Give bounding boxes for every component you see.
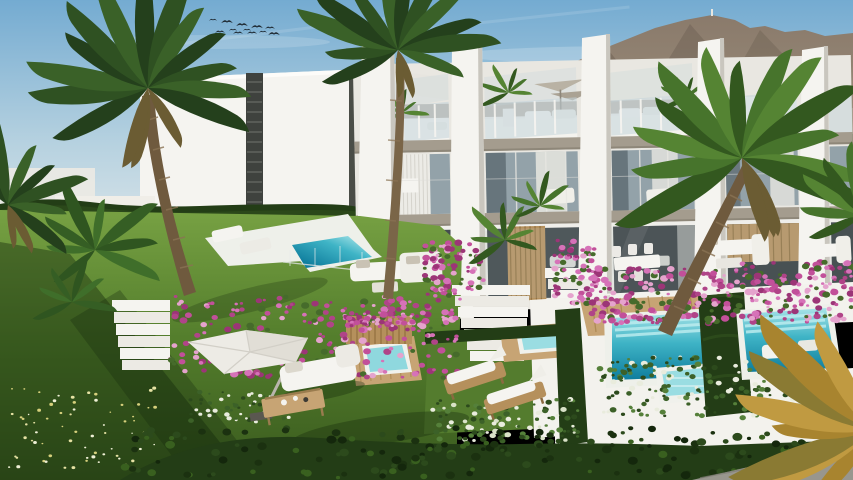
plant-dot	[91, 455, 95, 458]
plant-dot	[651, 321, 654, 324]
plant-dot	[522, 461, 531, 468]
plant-dot	[844, 260, 852, 266]
plant-dot	[617, 376, 623, 381]
plant-dot	[621, 431, 625, 434]
plant-dot	[740, 415, 746, 420]
plant-dot	[177, 302, 181, 306]
plant-dot	[102, 453, 105, 455]
plant-dot	[701, 366, 706, 370]
plant-dot	[660, 410, 666, 415]
plant-dot	[545, 424, 548, 427]
plant-dot	[349, 436, 356, 441]
plant-dot	[118, 458, 120, 460]
plant-dot	[640, 376, 645, 380]
plant-dot	[224, 412, 230, 416]
plant-dot	[235, 418, 238, 420]
plant-dot	[550, 416, 555, 420]
plant-dot	[379, 320, 385, 325]
plant-dot	[194, 333, 200, 338]
plant-dot	[690, 447, 700, 455]
plant-dot	[143, 431, 148, 435]
plant-dot	[8, 466, 10, 468]
plant-dot	[754, 388, 759, 392]
plant-dot	[621, 413, 625, 416]
plant-dot	[255, 372, 259, 376]
plant-dot	[586, 292, 592, 297]
plant-dot	[551, 266, 558, 272]
plant-dot	[747, 455, 751, 458]
plant-dot	[706, 390, 709, 393]
plant-dot	[677, 396, 681, 399]
plant-dot	[603, 296, 607, 299]
plant-dot	[677, 367, 683, 372]
plant-dot	[317, 316, 324, 321]
plant-dot	[446, 338, 449, 341]
plant-dot	[410, 327, 415, 331]
plant-dot	[508, 421, 512, 424]
plant-dot	[626, 391, 632, 396]
plant-dot	[546, 455, 554, 461]
plant-dot	[417, 323, 423, 328]
plant-dot	[208, 401, 212, 405]
plant-dot	[408, 346, 412, 349]
plant-dot	[849, 275, 853, 278]
plant-dot	[553, 284, 557, 287]
plant-dot	[492, 422, 497, 426]
plant-dot	[301, 302, 309, 309]
plant-dot	[436, 402, 439, 405]
plant-dot	[610, 407, 617, 412]
plant-dot	[132, 416, 134, 418]
plant-dot	[463, 437, 467, 440]
plant-dot	[94, 393, 97, 396]
plant-dot	[372, 304, 376, 307]
plant-dot	[255, 460, 263, 466]
plant-dot	[258, 306, 266, 312]
plant-dot	[392, 316, 395, 318]
plant-dot	[564, 416, 570, 421]
plant-dot	[560, 407, 566, 412]
plant-dot	[791, 308, 798, 314]
plant-dot	[349, 311, 354, 315]
plant-dot	[138, 439, 144, 444]
plant-dot	[711, 431, 716, 435]
plant-dot	[219, 398, 224, 402]
plant-dot	[759, 387, 765, 392]
plant-dot	[722, 274, 725, 277]
plant-dot	[781, 274, 787, 278]
plant-dot	[240, 302, 243, 305]
plant-dot	[607, 396, 612, 400]
plant-dot	[440, 288, 443, 291]
plant-dot	[736, 303, 743, 309]
plant-dot	[663, 464, 672, 471]
plant-dot	[239, 413, 242, 415]
plant-dot	[620, 299, 627, 304]
plant-dot	[815, 305, 822, 311]
plant-dot	[519, 435, 525, 440]
plant-dot	[784, 281, 788, 284]
plant-dot	[261, 316, 266, 320]
plant-dot	[496, 429, 504, 435]
plant-dot	[443, 278, 451, 284]
plant-dot	[471, 453, 481, 461]
plant-dot	[726, 389, 732, 394]
plant-dot	[685, 372, 689, 376]
plant-dot	[724, 301, 731, 307]
plant-dot	[505, 432, 512, 437]
plant-dot	[514, 406, 518, 410]
plant-dot	[480, 420, 485, 424]
plant-dot	[762, 274, 768, 279]
plant-dot	[410, 315, 413, 318]
plant-dot	[20, 416, 23, 418]
plant-dot	[451, 288, 457, 293]
plant-dot	[460, 444, 466, 449]
plant-dot	[799, 303, 804, 307]
plant-dot	[580, 248, 585, 252]
plant-dot	[388, 306, 395, 312]
plant-dot	[695, 362, 702, 367]
plant-dot	[28, 414, 30, 415]
plant-dot	[805, 295, 810, 299]
plant-dot	[608, 317, 616, 323]
plant-dot	[265, 311, 271, 316]
plant-dot	[445, 414, 448, 416]
plant-dot	[224, 327, 231, 333]
plant-dot	[639, 438, 643, 442]
plant-dot	[846, 269, 852, 274]
plant-dot	[636, 316, 643, 322]
plant-dot	[86, 457, 89, 459]
plant-dot	[179, 352, 185, 357]
plant-dot	[814, 265, 822, 271]
plant-dot	[743, 360, 748, 364]
plant-dot	[806, 319, 810, 322]
plant-dot	[560, 434, 563, 437]
plant-dot	[23, 436, 26, 439]
plant-dot	[206, 409, 211, 413]
plant-dot	[603, 320, 607, 323]
plant-dot	[713, 411, 716, 414]
plant-dot	[669, 357, 672, 359]
plant-dot	[180, 317, 188, 323]
plant-dot	[827, 307, 832, 311]
plant-dot	[674, 436, 681, 442]
plant-dot	[628, 426, 633, 430]
plant-dot	[411, 455, 419, 462]
plant-dot	[437, 437, 443, 442]
plant-dot	[497, 416, 502, 420]
plant-dot	[424, 304, 430, 309]
plant-dot	[778, 273, 782, 276]
plant-dot	[153, 406, 157, 409]
plant-dot	[454, 240, 462, 246]
plant-dot	[168, 357, 175, 363]
plant-dot	[630, 274, 636, 279]
plant-dot	[252, 402, 256, 405]
plant-dot	[247, 394, 251, 397]
plant-dot	[282, 418, 285, 420]
plant-dot	[704, 316, 712, 323]
plant-dot	[152, 387, 156, 390]
plant-dot	[442, 407, 445, 410]
plant-dot	[250, 470, 256, 475]
plant-dot	[327, 321, 335, 327]
plant-dot	[645, 399, 649, 402]
plant-dot	[378, 311, 381, 313]
render-image: Photorealistic CGI exterior rendering of…	[0, 0, 853, 480]
plant-dot	[131, 433, 133, 434]
plant-dot	[787, 293, 792, 297]
plant-dot	[556, 239, 560, 242]
plant-dot	[436, 254, 440, 257]
plant-dot	[567, 293, 573, 298]
plant-dot	[656, 291, 661, 295]
plant-dot	[432, 368, 436, 371]
plant-dot	[282, 427, 289, 433]
plant-dot	[355, 313, 358, 316]
plant-dot	[616, 361, 619, 364]
plant-dot	[587, 439, 595, 445]
plant-dot	[421, 460, 428, 466]
plant-dot	[361, 448, 367, 452]
plant-dot	[739, 314, 746, 319]
plant-dot	[599, 290, 603, 293]
plant-dot	[329, 301, 332, 304]
plant-dot	[405, 328, 410, 332]
plant-dot	[751, 414, 755, 418]
plant-dot	[601, 375, 606, 379]
plant-dot	[69, 439, 73, 442]
plant-dot	[463, 420, 468, 424]
plant-dot	[208, 393, 210, 395]
plant-dot	[592, 247, 597, 251]
plant-dot	[375, 322, 380, 326]
plant-dot	[636, 310, 640, 313]
plant-dot	[23, 388, 25, 390]
plant-dot	[321, 335, 325, 338]
plant-dot	[183, 436, 187, 440]
plant-dot	[771, 261, 776, 265]
plant-dot	[110, 412, 112, 413]
plant-dot	[443, 429, 447, 433]
plant-dot	[737, 371, 740, 374]
plant-dot	[705, 373, 712, 378]
plant-dot	[503, 411, 510, 416]
plant-dot	[714, 395, 719, 399]
plant-dot	[555, 291, 561, 295]
plant-dot	[635, 304, 643, 310]
plant-dot	[588, 258, 594, 263]
plant-dot	[662, 388, 668, 393]
plant-dot	[602, 446, 612, 454]
plant-dot	[69, 413, 71, 415]
plant-dot	[124, 420, 127, 422]
plant-dot	[727, 294, 731, 297]
plant-dot	[316, 337, 322, 342]
plant-dot	[631, 409, 635, 413]
plant-dot	[610, 291, 616, 296]
plant-dot	[283, 295, 288, 299]
plant-dot	[398, 464, 407, 471]
plant-dot	[576, 435, 579, 438]
plant-dot	[588, 276, 594, 281]
plant-dot	[397, 430, 404, 435]
plant-dot	[767, 279, 775, 286]
plant-dot	[796, 282, 801, 286]
plant-dot	[533, 403, 536, 405]
plant-dot	[466, 286, 472, 290]
glass-balustrade	[485, 97, 578, 140]
plant-dot	[695, 397, 699, 400]
plant-dot	[566, 430, 570, 433]
plant-dot	[391, 463, 397, 468]
plant-dot	[230, 409, 233, 412]
plant-dot	[225, 406, 231, 410]
plant-dot	[733, 364, 738, 368]
plant-dot	[33, 422, 35, 424]
plant-dot	[402, 337, 407, 341]
plant-dot	[73, 408, 76, 410]
plant-dot	[447, 263, 450, 266]
plant-dot	[555, 260, 561, 265]
plant-dot	[654, 390, 657, 393]
plant-dot	[205, 305, 210, 309]
plant-dot	[747, 368, 752, 372]
plant-dot	[188, 418, 194, 423]
plant-dot	[563, 402, 568, 406]
plant-dot	[273, 301, 277, 304]
plant-dot	[401, 321, 407, 326]
plant-dot	[454, 335, 459, 339]
plant-dot	[653, 366, 657, 369]
plant-dot	[49, 454, 53, 457]
plant-dot	[433, 430, 439, 435]
plant-dot	[287, 416, 291, 419]
plant-dot	[697, 438, 707, 446]
plant-dot	[802, 263, 809, 269]
plant-dot	[655, 408, 660, 412]
plant-dot	[466, 471, 473, 477]
plant-dot	[467, 242, 472, 246]
plant-dot	[268, 373, 272, 376]
plant-dot	[708, 380, 714, 385]
plant-dot	[820, 273, 826, 278]
plant-dot	[381, 360, 384, 363]
plant-dot	[303, 320, 307, 323]
plant-dot	[346, 316, 352, 321]
plant-dot	[692, 306, 695, 309]
plant-dot	[452, 425, 459, 431]
plant-dot	[235, 309, 240, 313]
plant-dot	[279, 316, 285, 320]
plant-dot	[641, 301, 645, 304]
plant-dot	[704, 406, 709, 410]
plant-dot	[365, 342, 370, 346]
plant-dot	[581, 264, 587, 269]
plant-dot	[648, 426, 656, 432]
plant-dot	[649, 364, 652, 366]
plant-dot	[642, 364, 648, 369]
plant-dot	[235, 303, 238, 306]
plant-dot	[527, 426, 533, 431]
plant-dot	[360, 298, 368, 305]
plant-dot	[837, 266, 842, 270]
plant-dot	[219, 456, 228, 463]
plant-dot	[91, 435, 94, 438]
plant-dot	[678, 357, 682, 361]
plant-dot	[602, 301, 610, 307]
plant-dot	[580, 253, 587, 258]
plant-dot	[695, 292, 701, 297]
plant-dot	[614, 471, 620, 476]
plant-dot	[568, 399, 571, 401]
plant-dot	[436, 407, 442, 412]
plant-dot	[639, 412, 644, 416]
plant-dot	[647, 444, 652, 448]
plant-dot	[265, 328, 270, 332]
plant-dot	[308, 321, 312, 324]
plant-dot	[536, 443, 543, 448]
plant-dot	[690, 357, 694, 361]
plant-dot	[545, 449, 550, 453]
villa-render-canvas	[0, 0, 853, 480]
plant-dot	[239, 307, 244, 311]
plant-dot	[37, 409, 41, 412]
plant-dot	[586, 268, 591, 272]
plant-dot	[396, 321, 400, 324]
plant-dot	[284, 310, 288, 313]
plant-dot	[710, 271, 717, 277]
plant-dot	[681, 471, 691, 479]
plant-dot	[667, 293, 670, 296]
plant-dot	[389, 468, 397, 474]
plant-dot	[111, 448, 113, 450]
plant-dot	[419, 363, 425, 368]
plant-dot	[444, 254, 450, 259]
plant-dot	[739, 450, 746, 456]
plant-dot	[607, 287, 612, 291]
plant-dot	[156, 460, 161, 464]
plant-dot	[750, 299, 754, 302]
plant-dot	[769, 315, 773, 318]
plant-dot	[329, 316, 335, 321]
plant-dot	[420, 474, 427, 480]
plant-dot	[649, 373, 654, 377]
plant-dot	[451, 403, 457, 407]
plant-dot	[804, 315, 808, 318]
plant-dot	[814, 286, 819, 290]
plant-dot	[131, 460, 134, 463]
plant-dot	[470, 269, 476, 274]
plant-dot	[790, 319, 794, 322]
plant-dot	[436, 265, 440, 268]
plant-dot	[209, 323, 212, 326]
plant-dot	[777, 309, 783, 314]
plant-dot	[554, 398, 558, 401]
plant-dot	[441, 442, 448, 447]
plant-dot	[806, 304, 809, 307]
plant-dot	[439, 245, 443, 248]
plant-dot	[642, 285, 648, 290]
plant-dot	[389, 347, 394, 351]
plant-dot	[702, 287, 707, 291]
plant-dot	[94, 452, 97, 455]
plant-dot	[258, 403, 263, 407]
plant-dot	[560, 260, 566, 265]
plant-dot	[422, 261, 428, 266]
